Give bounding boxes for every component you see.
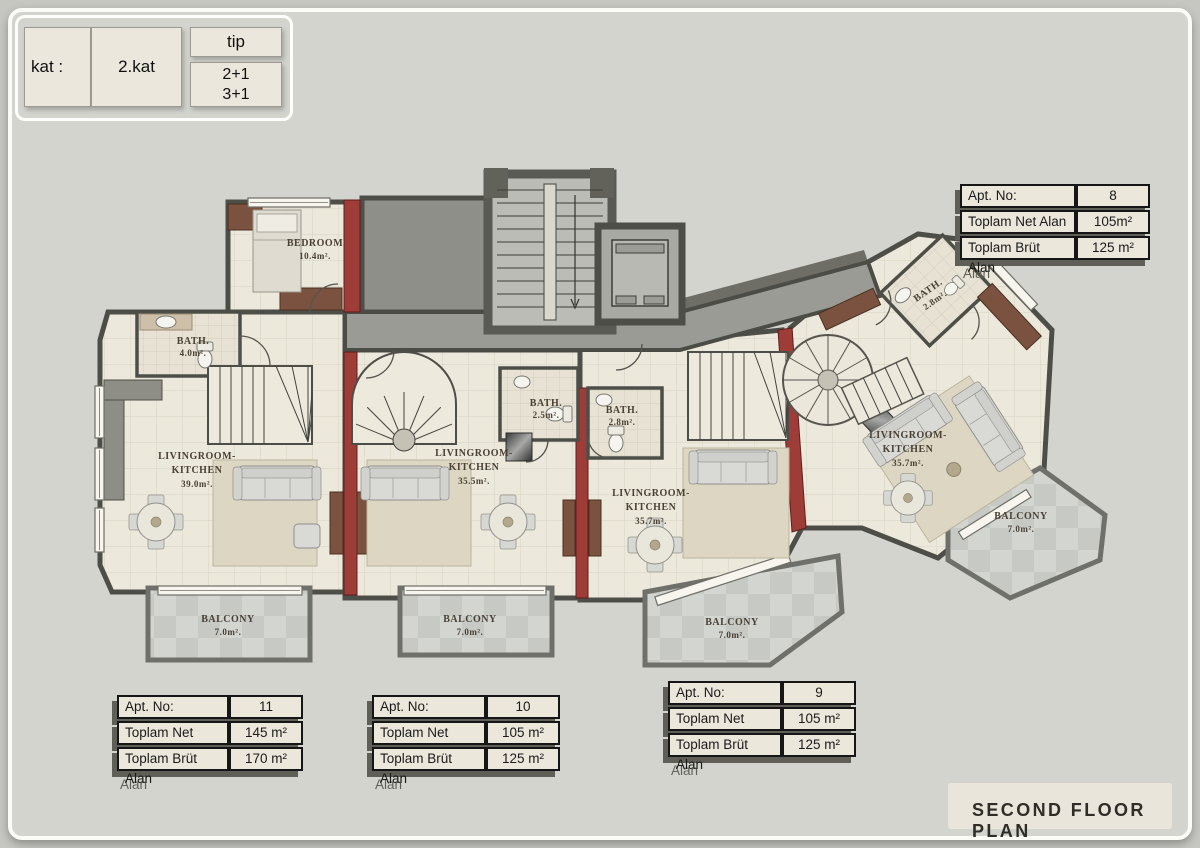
table-row: Apt. No:11	[117, 695, 303, 719]
void-shaft	[362, 198, 488, 312]
net-area-value: 105 m²	[782, 707, 856, 731]
apt-no-label: Apt. No:	[372, 695, 486, 719]
apt-table-11: Apt. No:11 Toplam Net Alan145 m² Toplam …	[117, 695, 303, 773]
apt-no-value: 11	[229, 695, 303, 719]
legend-kat-value: 2.kat	[118, 57, 155, 77]
net-area-value: 145 m²	[229, 721, 303, 745]
apt-no-label: Apt. No:	[960, 184, 1076, 208]
table-row: Toplam Brüt Alan125 m²	[372, 747, 560, 771]
net-area-label: Toplam Net Alan	[117, 721, 229, 745]
apt-no-value: 9	[782, 681, 856, 705]
apt-no-value: 8	[1076, 184, 1150, 208]
apt-no-label: Apt. No:	[668, 681, 782, 705]
gross-area-label: Toplam Brüt Alan	[117, 747, 229, 771]
gross-area-value: 125 m²	[486, 747, 560, 771]
stair-apt10	[352, 352, 456, 451]
gross-area-value: 125 m²	[1076, 236, 1150, 260]
table-row: Toplam Net Alan145 m²	[117, 721, 303, 745]
stair-apt9	[688, 352, 788, 440]
net-area-label: Toplam Net Alan	[668, 707, 782, 731]
apt-no-label: Apt. No:	[117, 695, 229, 719]
elevator	[598, 226, 682, 322]
table-row: Apt. No:9	[668, 681, 856, 705]
armchair-apt11	[294, 524, 320, 548]
table-row: Toplam Brüt Alan125 m²	[960, 236, 1150, 260]
legend-kat-label-box: kat :	[24, 27, 91, 107]
bed	[253, 210, 301, 292]
legend-tip-label: tip	[227, 32, 245, 52]
apt-table-8: Apt. No:8 Toplam Net Alan105m² Toplam Br…	[960, 184, 1150, 262]
table-row: Toplam Net Alan105 m²	[372, 721, 560, 745]
sofa-apt11	[233, 466, 321, 500]
gross-area-label: Toplam Brüt Alan	[668, 733, 782, 757]
red-wall-1	[344, 200, 360, 312]
sofa-apt9	[689, 450, 777, 484]
apt-table-10: Apt. No:10 Toplam Net Alan105 m² Toplam …	[372, 695, 560, 773]
stair-apt11	[208, 366, 312, 444]
gross-area-label: Toplam Brüt Alan	[372, 747, 486, 771]
legend-kat-value-box: 2.kat	[91, 27, 182, 107]
net-area-label: Toplam Net Alan	[372, 721, 486, 745]
apt-table-9: Apt. No:9 Toplam Net Alan105 m² Toplam B…	[668, 681, 856, 759]
net-area-value: 105 m²	[486, 721, 560, 745]
table-row: Apt. No:8	[960, 184, 1150, 208]
gross-area-value: 170 m²	[229, 747, 303, 771]
legend-tip-label-box: tip	[190, 27, 282, 57]
table-row: Apt. No:10	[372, 695, 560, 719]
legend-tip-values-box: 2+1 3+1	[190, 62, 282, 107]
table-row: Toplam Brüt Alan125 m²	[668, 733, 856, 757]
legend-tip-option-1: 2+1	[222, 65, 249, 85]
legend-kat-label: kat :	[31, 57, 63, 77]
apt-no-value: 10	[486, 695, 560, 719]
sofa-apt10	[361, 466, 449, 500]
table-row: Toplam Net Alan105 m²	[668, 707, 856, 731]
table-row: Toplam Net Alan105m²	[960, 210, 1150, 234]
plan-title: SECOND FLOOR PLAN	[972, 800, 1200, 842]
gross-area-label: Toplam Brüt Alan	[960, 236, 1076, 260]
gross-area-value: 125 m²	[782, 733, 856, 757]
table-row: Toplam Brüt Alan170 m²	[117, 747, 303, 771]
net-area-value: 105m²	[1076, 210, 1150, 234]
legend-tip-option-2: 3+1	[222, 85, 249, 105]
net-area-label: Toplam Net Alan	[960, 210, 1076, 234]
